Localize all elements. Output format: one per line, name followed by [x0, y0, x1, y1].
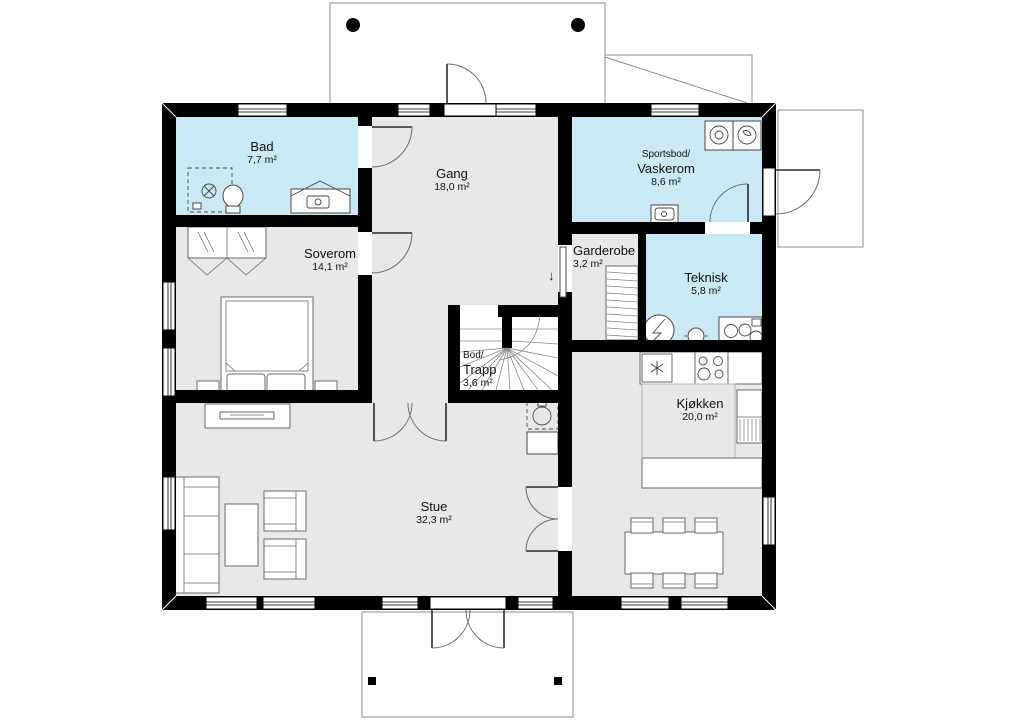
room-label-soverom: Soverom 14,1 m²	[304, 246, 356, 274]
dining-table	[625, 532, 723, 574]
garderobe-teknisk-wall	[638, 234, 646, 340]
stairs-down-arrow-icon: ↓	[548, 268, 555, 283]
teknisk-door-opening	[705, 222, 750, 234]
dining-chair	[695, 518, 717, 533]
side-porch	[778, 110, 863, 247]
walk-line-start	[538, 311, 543, 316]
room-label-bod-trapp: Bod/ Trapp 3,6 m²	[463, 350, 496, 390]
armchair	[264, 539, 306, 579]
livingroom-window	[518, 597, 553, 609]
room-label-stue: Stue 32,3 m²	[416, 499, 452, 527]
sliding-door-leaf	[560, 247, 566, 297]
stair-bottom-wall	[448, 390, 572, 403]
dining-side-window	[763, 497, 775, 545]
armchair	[264, 491, 306, 531]
coffee-table	[225, 504, 258, 566]
laundry-window	[651, 104, 699, 116]
livingroom-window	[382, 597, 418, 609]
dining-chair	[631, 573, 653, 588]
room-label-vaskerom: Sportsbod/ Vaskerom 8,6 m²	[637, 149, 695, 189]
stair-newel-wall	[502, 317, 512, 348]
deck-post	[554, 677, 562, 685]
entrance-door	[444, 104, 496, 116]
laundry-exterior-door	[763, 168, 775, 216]
dining-chair	[663, 518, 685, 533]
toilet	[223, 185, 243, 207]
room-label-kjokken: Kjøkken 20,0 m²	[677, 396, 724, 424]
terrace-deck	[362, 612, 573, 717]
hallway-window	[496, 104, 536, 116]
stove-cabinet	[527, 432, 558, 454]
livingroom-floor	[176, 403, 558, 596]
bathroom-window	[238, 104, 287, 116]
bedroom-window	[163, 282, 175, 330]
tall-cabinet	[737, 390, 762, 443]
stair-entry-opening	[460, 305, 498, 317]
wardrobe-fixtures	[606, 266, 638, 340]
room-label-bad: Bad 7,7 m²	[247, 139, 277, 167]
bathroom-door-opening	[358, 126, 372, 168]
cooktop	[695, 352, 728, 384]
dining-window	[621, 597, 669, 609]
dining-chair	[663, 573, 685, 588]
dining-chair	[695, 573, 717, 588]
deck-post	[368, 677, 376, 685]
floor-plan-canvas: Bad 7,7 m² Gang 18,0 m² Sportsbod/ Vaske…	[0, 0, 1018, 720]
veranda-post	[346, 18, 360, 32]
bath-bedroom-wall	[176, 215, 372, 227]
dining-furniture	[625, 518, 723, 588]
floor-plan-drawing	[0, 0, 1018, 720]
tv	[220, 412, 274, 419]
veranda-post	[571, 18, 585, 32]
ventilation-unit	[719, 317, 762, 343]
terrace-french-door	[430, 597, 506, 609]
livingroom-side-window	[163, 477, 175, 530]
sofa	[174, 477, 219, 593]
stair-left-wall	[448, 305, 460, 403]
kitchen-living-door-opening	[558, 487, 572, 551]
kitchen-living-wall	[558, 551, 572, 596]
bedroom-door-opening	[358, 232, 372, 275]
livingroom-window	[206, 597, 257, 609]
hallway-right-wall	[558, 117, 572, 487]
entrance-veranda	[330, 3, 605, 105]
livingroom-window	[263, 597, 315, 609]
room-label-gang: Gang 18,0 m²	[434, 166, 470, 194]
dining-chair	[631, 518, 653, 533]
washing-machine	[705, 121, 733, 150]
room-label-garderobe: Garderobe 3,2 m²	[573, 243, 635, 271]
bedroom-living-wall	[176, 390, 372, 403]
bedroom-window	[163, 348, 175, 396]
teknisk-kitchen-wall	[558, 340, 762, 352]
shower-head	[193, 203, 201, 209]
dining-window	[681, 597, 728, 609]
toilet-tank	[226, 206, 240, 213]
hallway-window	[398, 104, 430, 116]
kitchen-peninsula	[642, 458, 762, 488]
room-label-teknisk: Teknisk 5,8 m²	[684, 270, 727, 298]
